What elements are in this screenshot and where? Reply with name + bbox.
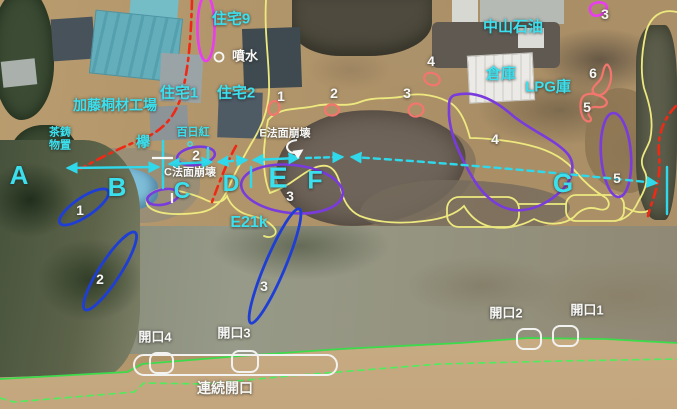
purple-zone-number-2: 2	[192, 147, 200, 163]
label-fountain: 噴水	[232, 50, 258, 65]
section-letter-G: G	[553, 169, 573, 199]
red-spot-number-2: 2	[330, 85, 338, 101]
label-lpg-store: LPG庫	[525, 78, 571, 95]
blue-crack-number-3: 3	[260, 278, 268, 294]
label-layer: 住宅9噴水住宅1住宅2加藤桐材工場茶鋳 物置欅百日紅中山石油倉庫LPG庫E21k…	[0, 0, 677, 409]
red-spot-number-1: 1	[277, 88, 285, 104]
label-house-2: 住宅2	[217, 84, 255, 101]
label-tea-shed: 茶鋳 物置	[49, 126, 71, 151]
blue-crack-number-1: 1	[76, 202, 84, 218]
section-letter-D: D	[223, 170, 240, 196]
label-opening-2: 開口2	[489, 307, 522, 322]
red-spot-number-3: 3	[403, 85, 411, 101]
label-opening-4: 開口4	[138, 331, 171, 346]
label-opening-3: 開口3	[217, 327, 250, 342]
purple-zone-number-4: 4	[491, 131, 499, 147]
purple-zone-number-5: 5	[613, 170, 621, 186]
label-nakayama-oil: 中山石油	[483, 18, 543, 35]
magenta-zone-number-3: 3	[601, 6, 609, 22]
label-crape-myrtle: 百日紅	[177, 127, 210, 140]
label-opening-1: 開口1	[570, 304, 603, 319]
salmon-mark-number-6: 6	[589, 65, 597, 81]
blue-crack-number-2: 2	[96, 271, 104, 287]
aerial-survey-map: 住宅9噴水住宅1住宅2加藤桐材工場茶鋳 物置欅百日紅中山石油倉庫LPG庫E21k…	[0, 0, 677, 409]
section-letter-C: C	[174, 177, 191, 203]
label-kato-wood-factory: 加藤桐材工場	[73, 97, 157, 113]
section-letter-F: F	[307, 167, 322, 196]
red-spot-number-4: 4	[427, 53, 435, 69]
label-slope-failure-e: E法面崩壊	[259, 128, 310, 141]
purple-zone-number-3: 3	[286, 188, 294, 204]
section-letter-B: B	[108, 173, 127, 203]
label-continuous-opening: 連続開口	[197, 380, 253, 396]
label-e21k: E21k	[230, 214, 267, 232]
label-zelkova-tree: 欅	[136, 134, 150, 150]
label-house-1: 住宅1	[160, 84, 198, 101]
section-letter-A: A	[10, 161, 29, 191]
section-letter-E: E	[268, 162, 287, 195]
salmon-mark-number-5: 5	[583, 99, 591, 115]
label-warehouse: 倉庫	[486, 65, 516, 82]
label-house-9: 住宅9	[212, 10, 250, 27]
